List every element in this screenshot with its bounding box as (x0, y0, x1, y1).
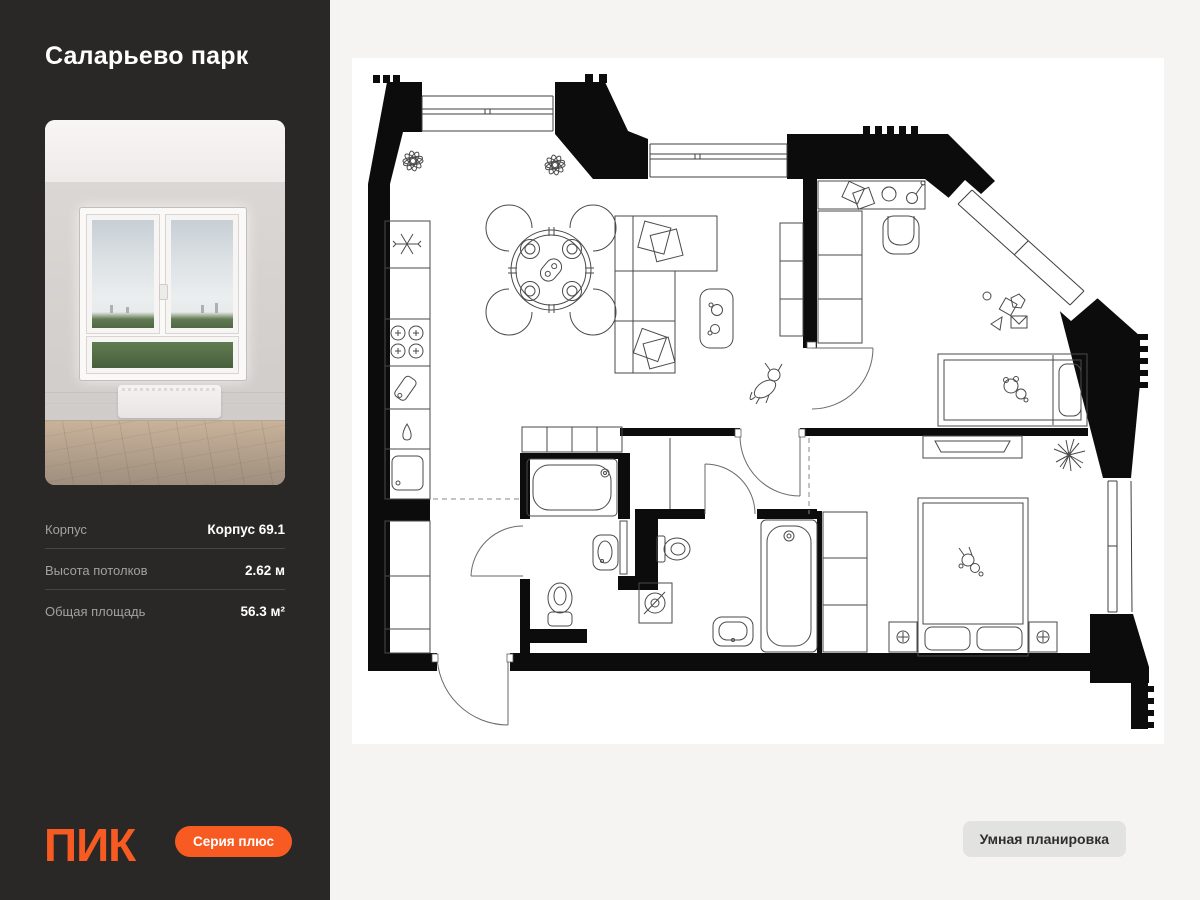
photo-floor (45, 420, 285, 485)
apartment-footprint (365, 82, 1143, 684)
detail-row-korpus: Корпус Корпус 69.1 (45, 508, 285, 549)
photo-ceiling (45, 120, 285, 186)
floor-plan-svg (365, 72, 1157, 740)
photo-window (80, 208, 246, 380)
detail-label: Общая площадь (45, 604, 145, 619)
floor-plan-canvas (352, 58, 1164, 744)
detail-row-total-area: Общая площадь 56.3 м² (45, 590, 285, 630)
smart-plan-button[interactable]: Умная планировка (963, 821, 1126, 857)
detail-label: Корпус (45, 522, 87, 537)
detail-value: Корпус 69.1 (207, 522, 285, 537)
photo-radiator (118, 385, 221, 418)
listing-details: Корпус Корпус 69.1 Высота потолков 2.62 … (45, 508, 285, 630)
listing-photo (45, 120, 285, 485)
window-handle (159, 284, 168, 300)
pik-logo: ПИК (44, 818, 135, 872)
detail-row-ceiling-height: Высота потолков 2.62 м (45, 549, 285, 590)
window-pane-bottom (87, 337, 238, 373)
sidebar: Саларьево парк (0, 0, 330, 900)
window-right (1106, 480, 1132, 613)
window-pane-left (87, 215, 159, 333)
window-pane-right (166, 215, 238, 333)
detail-value: 2.62 м (245, 563, 285, 578)
page: { "sidebar": { "title": "Саларьево парк"… (0, 0, 1200, 900)
series-plus-badge[interactable]: Серия плюс (175, 826, 292, 857)
project-title: Саларьево парк (45, 42, 248, 71)
detail-value: 56.3 м² (240, 604, 285, 619)
detail-label: Высота потолков (45, 563, 148, 578)
